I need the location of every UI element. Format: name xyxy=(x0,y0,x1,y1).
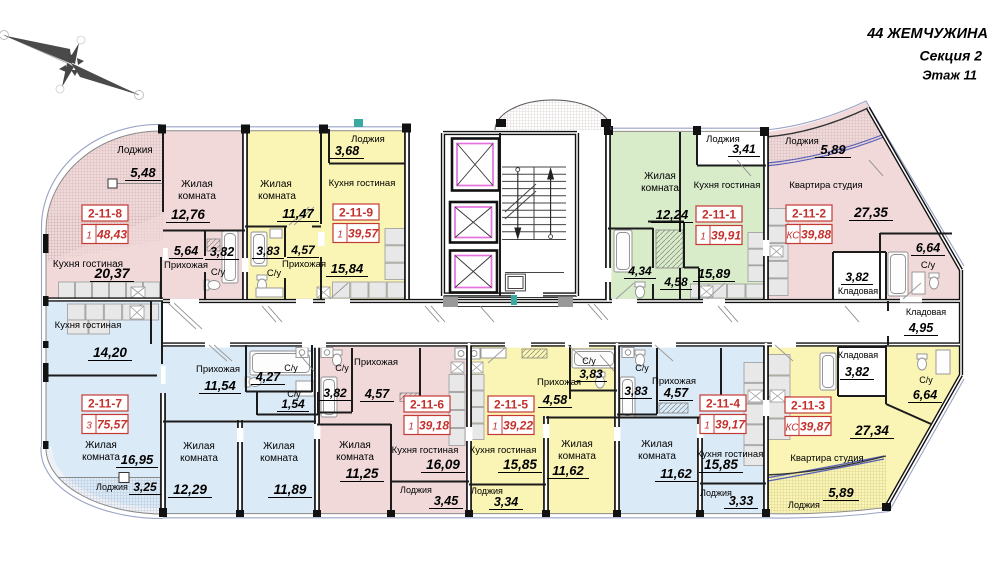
svg-text:39,22: 39,22 xyxy=(503,419,533,433)
svg-text:Этаж 11: Этаж 11 xyxy=(922,68,977,83)
svg-text:1: 1 xyxy=(86,231,92,242)
svg-text:комната: комната xyxy=(638,451,676,462)
svg-text:11,25: 11,25 xyxy=(346,466,379,481)
svg-text:С/у: С/у xyxy=(919,375,933,385)
svg-text:комната: комната xyxy=(178,191,216,202)
svg-text:2-11-7: 2-11-7 xyxy=(88,397,122,411)
svg-text:Жилая: Жилая xyxy=(260,179,292,190)
svg-text:3,68: 3,68 xyxy=(335,144,359,158)
svg-text:3,45: 3,45 xyxy=(434,494,459,508)
svg-text:5,89: 5,89 xyxy=(828,485,854,500)
svg-text:Лоджия: Лоджия xyxy=(96,482,128,492)
svg-text:39,88: 39,88 xyxy=(801,228,831,242)
svg-text:4,57: 4,57 xyxy=(290,243,316,257)
svg-text:С/у: С/у xyxy=(267,268,282,279)
svg-text:11,89: 11,89 xyxy=(274,482,307,497)
svg-text:Лоджия: Лоджия xyxy=(700,488,732,498)
svg-text:комната: комната xyxy=(558,451,596,462)
svg-text:39,17: 39,17 xyxy=(715,418,746,432)
svg-text:11,62: 11,62 xyxy=(660,466,692,481)
svg-text:3,82: 3,82 xyxy=(210,245,234,259)
svg-text:3,34: 3,34 xyxy=(494,495,518,509)
svg-text:16,95: 16,95 xyxy=(121,452,154,467)
svg-text:3,82: 3,82 xyxy=(845,270,869,284)
svg-text:КС: КС xyxy=(786,231,800,242)
svg-text:Жилая: Жилая xyxy=(181,179,213,190)
svg-text:1: 1 xyxy=(337,230,343,241)
svg-text:3,41: 3,41 xyxy=(732,142,756,156)
svg-text:Квартира студия: Квартира студия xyxy=(789,180,862,191)
svg-text:27,34: 27,34 xyxy=(854,423,889,438)
svg-text:16,09: 16,09 xyxy=(426,457,460,472)
svg-text:11,54: 11,54 xyxy=(204,378,236,393)
svg-text:Квартира студия: Квартира студия xyxy=(790,453,863,464)
svg-text:44 ЖЕМЧУЖИНА: 44 ЖЕМЧУЖИНА xyxy=(866,26,988,42)
svg-text:20,37: 20,37 xyxy=(93,265,130,281)
svg-text:2-11-6: 2-11-6 xyxy=(410,398,444,412)
svg-text:1,54: 1,54 xyxy=(281,397,305,411)
svg-text:Жилая: Жилая xyxy=(644,171,676,182)
svg-text:С/у: С/у xyxy=(284,363,298,373)
svg-text:3,82: 3,82 xyxy=(323,386,347,400)
svg-text:1: 1 xyxy=(700,232,706,243)
svg-text:12,29: 12,29 xyxy=(173,482,207,497)
svg-text:С/у: С/у xyxy=(582,356,596,366)
svg-text:4,58: 4,58 xyxy=(663,275,688,289)
svg-text:Кухня гостиная: Кухня гостиная xyxy=(694,180,761,191)
svg-text:комната: комната xyxy=(260,453,298,464)
svg-text:Жилая: Жилая xyxy=(561,439,593,450)
svg-text:Жилая: Жилая xyxy=(641,439,673,450)
svg-text:2-11-9: 2-11-9 xyxy=(339,206,373,220)
svg-text:1: 1 xyxy=(492,422,498,433)
svg-text:12,76: 12,76 xyxy=(171,207,205,222)
svg-text:1: 1 xyxy=(704,421,710,432)
svg-text:6,64: 6,64 xyxy=(916,241,940,255)
svg-text:Секция 2: Секция 2 xyxy=(919,48,982,64)
svg-text:15,85: 15,85 xyxy=(704,457,738,472)
svg-text:15,84: 15,84 xyxy=(331,261,364,276)
svg-text:Жилая: Жилая xyxy=(263,441,295,452)
svg-text:Лоджия: Лоджия xyxy=(788,500,820,510)
svg-text:39,87: 39,87 xyxy=(800,420,831,434)
svg-text:5,64: 5,64 xyxy=(174,244,198,258)
svg-text:2-11-3: 2-11-3 xyxy=(791,399,825,413)
svg-text:С/у: С/у xyxy=(211,267,226,278)
svg-text:75,57: 75,57 xyxy=(97,418,128,432)
svg-text:12,24: 12,24 xyxy=(656,207,689,222)
svg-text:2-11-2: 2-11-2 xyxy=(792,207,826,221)
svg-text:4,57: 4,57 xyxy=(364,387,390,401)
svg-text:3,83: 3,83 xyxy=(579,367,603,381)
svg-text:Жилая: Жилая xyxy=(339,440,371,451)
svg-text:39,18: 39,18 xyxy=(419,419,449,433)
svg-text:комната: комната xyxy=(258,191,296,202)
svg-text:комната: комната xyxy=(82,452,120,463)
svg-text:Кухня гостиная: Кухня гостиная xyxy=(392,445,459,456)
svg-text:39,57: 39,57 xyxy=(348,227,379,241)
svg-text:Кладовая: Кладовая xyxy=(906,307,946,317)
svg-text:4,34: 4,34 xyxy=(627,264,652,278)
svg-text:С/у: С/у xyxy=(635,363,649,373)
svg-text:14,20: 14,20 xyxy=(93,345,127,360)
svg-text:Лоджия: Лоджия xyxy=(400,485,432,495)
svg-text:комната: комната xyxy=(336,452,374,463)
svg-text:комната: комната xyxy=(180,453,218,464)
svg-text:4,58: 4,58 xyxy=(542,393,567,407)
svg-text:15,85: 15,85 xyxy=(503,457,537,472)
svg-text:Кухня гостиная: Кухня гостиная xyxy=(329,178,396,189)
svg-text:4,27: 4,27 xyxy=(255,370,281,384)
svg-text:5,48: 5,48 xyxy=(130,165,156,180)
svg-text:Жилая: Жилая xyxy=(85,440,117,451)
svg-text:2-11-1: 2-11-1 xyxy=(702,208,736,222)
svg-text:11,47: 11,47 xyxy=(282,206,314,221)
svg-text:6,64: 6,64 xyxy=(913,388,937,402)
svg-text:Жилая: Жилая xyxy=(183,441,215,452)
svg-text:3,83: 3,83 xyxy=(256,244,280,258)
svg-text:Лоджия: Лоджия xyxy=(785,136,819,147)
svg-text:4,95: 4,95 xyxy=(908,321,934,335)
svg-text:С/у: С/у xyxy=(921,260,936,271)
svg-text:Прихожая: Прихожая xyxy=(164,260,208,271)
svg-text:Кладовая: Кладовая xyxy=(838,286,878,296)
svg-text:39,91: 39,91 xyxy=(711,229,741,243)
svg-text:27,35: 27,35 xyxy=(853,205,888,220)
svg-text:Прихожая: Прихожая xyxy=(354,357,398,368)
svg-text:Кухня гостиная: Кухня гостиная xyxy=(470,445,537,456)
svg-text:Лоджия: Лоджия xyxy=(117,145,152,156)
svg-text:3,83: 3,83 xyxy=(624,384,648,398)
svg-text:3,33: 3,33 xyxy=(729,494,753,508)
svg-text:11,62: 11,62 xyxy=(552,463,584,478)
svg-text:1: 1 xyxy=(408,422,414,433)
svg-text:3: 3 xyxy=(86,421,92,432)
svg-text:КС: КС xyxy=(785,423,799,434)
svg-text:С/у: С/у xyxy=(335,363,349,373)
svg-text:Прихожая: Прихожая xyxy=(282,259,326,270)
svg-text:Прихожая: Прихожая xyxy=(537,377,581,388)
svg-text:15,89: 15,89 xyxy=(698,266,731,281)
svg-text:комната: комната xyxy=(641,183,679,194)
svg-text:Кухня гостиная: Кухня гостиная xyxy=(55,320,122,331)
svg-text:Прихожая: Прихожая xyxy=(196,364,240,375)
svg-text:5,89: 5,89 xyxy=(820,142,846,157)
svg-text:48,43: 48,43 xyxy=(96,228,127,242)
svg-text:3,25: 3,25 xyxy=(133,480,157,494)
svg-text:4,57: 4,57 xyxy=(663,386,689,400)
svg-text:3,82: 3,82 xyxy=(845,365,869,379)
svg-text:2-11-8: 2-11-8 xyxy=(88,207,122,221)
svg-text:2-11-5: 2-11-5 xyxy=(494,398,528,412)
svg-text:Кладовая: Кладовая xyxy=(838,350,878,360)
svg-text:2-11-4: 2-11-4 xyxy=(706,397,740,411)
